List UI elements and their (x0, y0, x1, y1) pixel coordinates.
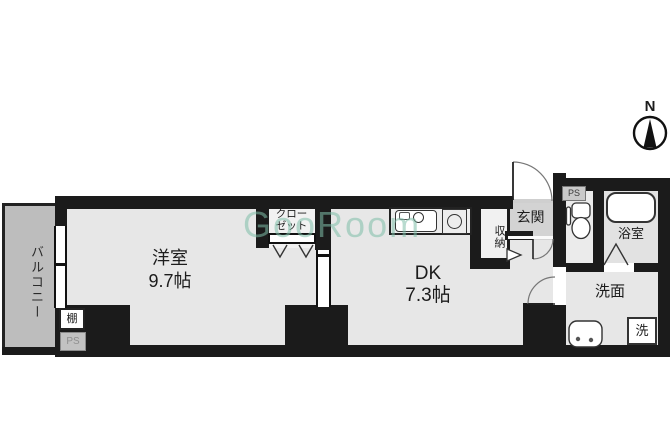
compass-icon (634, 117, 666, 149)
entrance-label: 玄関 (508, 210, 553, 226)
closet-hook-icon (299, 245, 313, 257)
western-room-label: 洋室 (110, 248, 230, 270)
balcony-label: バルコニー (17, 232, 43, 332)
washroom-door-icon (528, 277, 555, 304)
floor-plan: PS 棚 PS 洗 (0, 0, 672, 447)
closet-hook-icon (273, 245, 287, 257)
bathroom-label: 浴室 (604, 227, 658, 243)
storage-label: 収納 (483, 214, 505, 260)
hall-door-icon (533, 239, 553, 259)
plan-symbols-layer (0, 0, 672, 447)
western-room-size: 9.7帖 (110, 271, 230, 293)
entrance-door-icon (513, 162, 552, 201)
closet-label-line2: ゼット (267, 221, 316, 233)
compass-north-label: N (640, 99, 660, 115)
washbasin-icon (569, 321, 602, 347)
dk-label: DK (368, 263, 488, 285)
washroom-label: 洗面 (578, 284, 642, 302)
dk-size: 7.3帖 (368, 285, 488, 307)
bath-door-icon (604, 244, 628, 265)
toilet-icon (567, 203, 591, 239)
storage-door-arrow-icon (507, 249, 521, 261)
